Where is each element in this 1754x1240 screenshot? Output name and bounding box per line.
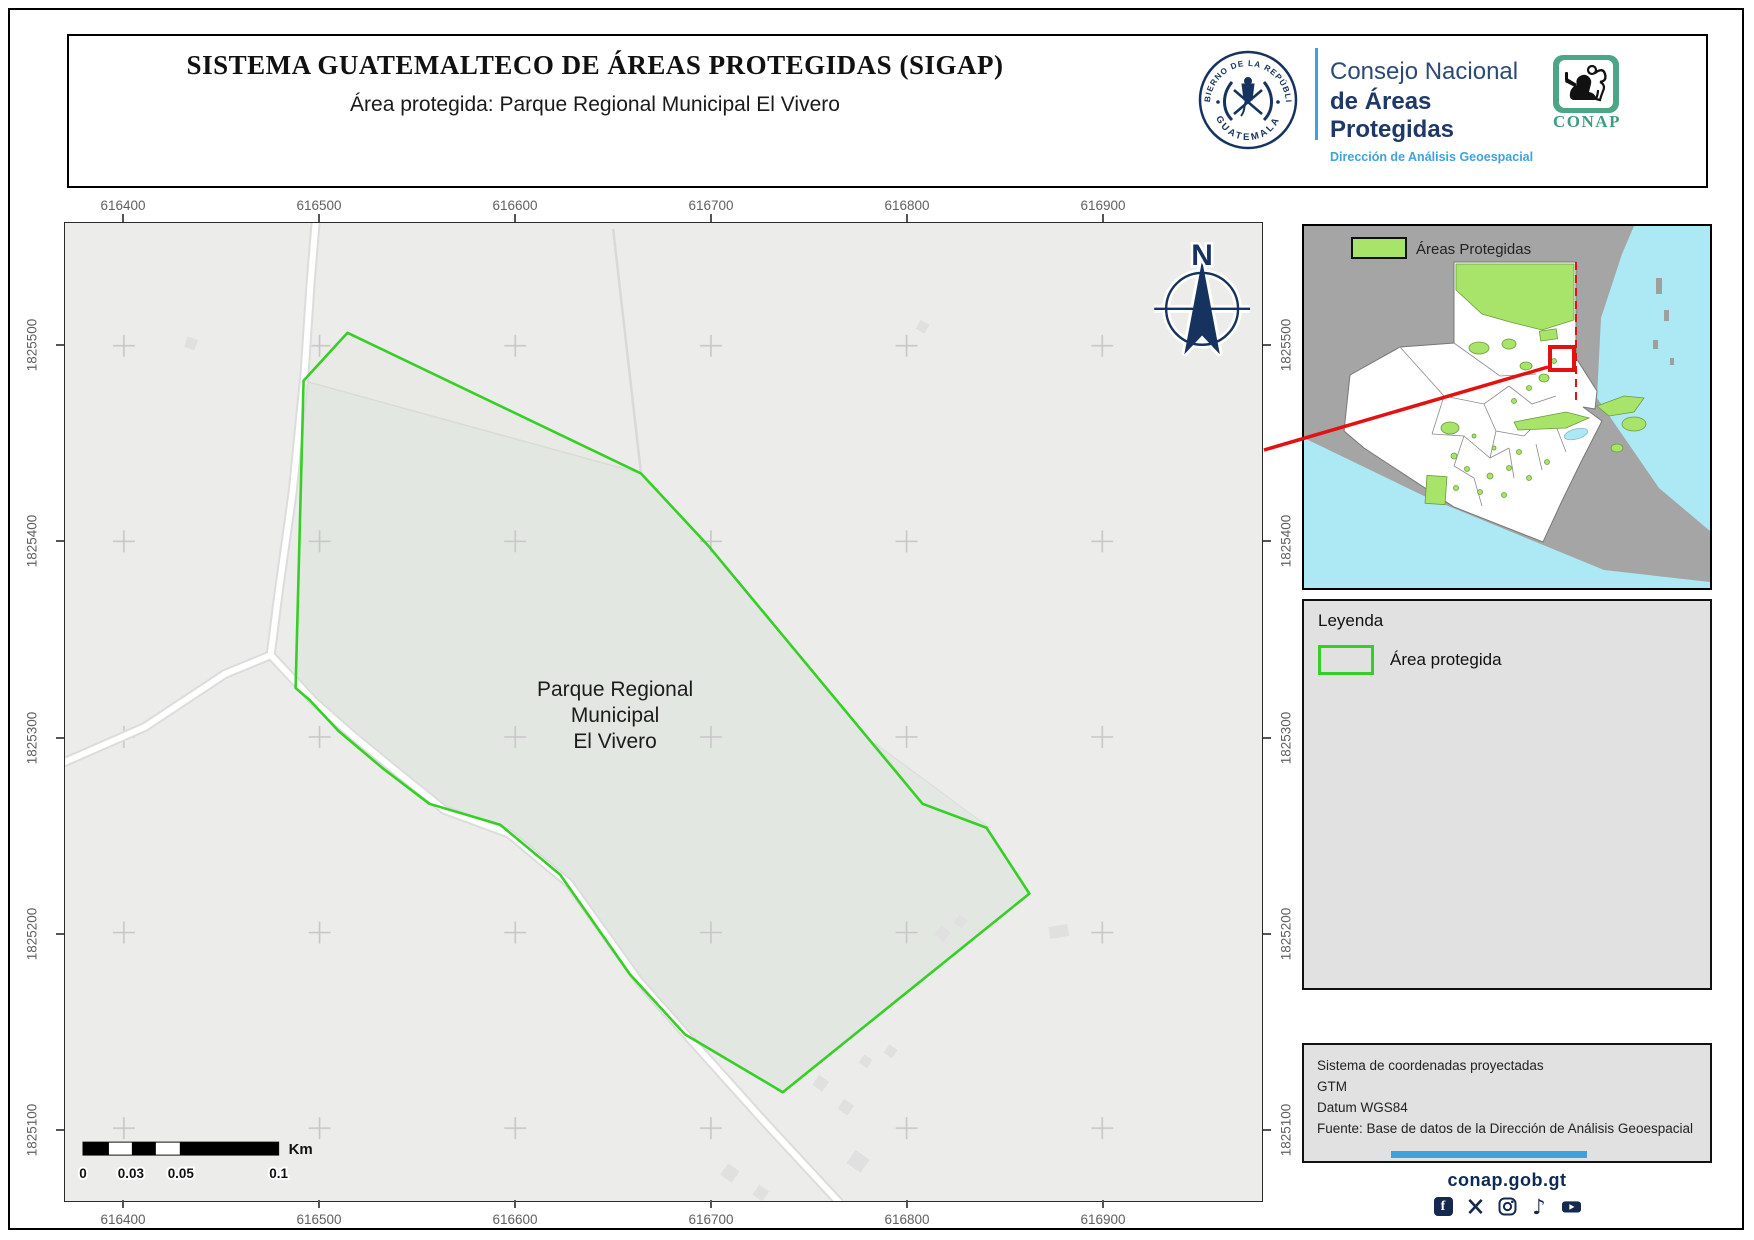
x-axis-label-top: 616600 (492, 198, 537, 213)
y-axis-label-right: 1825300 (1279, 712, 1294, 765)
website-url: conap.gob.gt (1302, 1170, 1712, 1191)
x-tickmark (318, 1200, 320, 1208)
x-axis-label-bottom: 616700 (688, 1212, 733, 1227)
facebook-icon: f (1434, 1197, 1453, 1216)
x-tickmark (1102, 214, 1104, 222)
y-axis-label-right: 1825500 (1279, 319, 1294, 372)
government-seal-logo: GOBIERNO DE LA REPÚBLICA GUATEMALA (1198, 50, 1298, 150)
scale-tick-01: 0.1 (269, 1166, 288, 1181)
area-label-line1: Parque Regional (537, 678, 693, 701)
scale-tick-0: 0 (79, 1166, 87, 1181)
council-line3: Dirección de Análisis Geoespacial (1330, 150, 1555, 164)
x-axis-label-bottom: 616600 (492, 1212, 537, 1227)
x-tickmark (906, 1200, 908, 1208)
x-axis-label-top: 616700 (688, 198, 733, 213)
scale-unit: Km (289, 1141, 313, 1158)
legend-item: Área protegida (1318, 645, 1696, 675)
y-axis-label-left: 1825300 (25, 712, 40, 765)
y-tickmark (56, 1129, 64, 1131)
y-axis-label-right: 1825400 (1279, 515, 1294, 568)
area-label-line2: Municipal (571, 704, 660, 727)
y-axis-label-left: 1825100 (25, 1104, 40, 1157)
scale-tick-005: 0.05 (168, 1166, 195, 1181)
x-tickmark (514, 1200, 516, 1208)
y-tickmark (1263, 933, 1271, 935)
y-tickmark (56, 344, 64, 346)
north-label: N (1191, 239, 1213, 272)
x-axis-label-bottom: 616500 (296, 1212, 341, 1227)
inset-overview-map: Áreas Protegidas (1302, 224, 1712, 590)
conap-monkey-icon (1559, 60, 1613, 108)
y-tickmark (1263, 344, 1271, 346)
map-sheet: SISTEMA GUATEMALTECO DE ÁREAS PROTEGIDAS… (0, 0, 1754, 1240)
council-wordmark: Consejo Nacional de Áreas Protegidas Dir… (1330, 58, 1555, 164)
x-tickmark (710, 214, 712, 222)
page-title: SISTEMA GUATEMALTECO DE ÁREAS PROTEGIDAS… (90, 50, 1100, 81)
legend-title: Leyenda (1318, 611, 1696, 631)
y-axis-label-left: 1825500 (25, 319, 40, 372)
y-tickmark (56, 540, 64, 542)
datum-line: Datum WGS84 (1317, 1098, 1697, 1119)
inset-legend-label: Áreas Protegidas (1416, 241, 1531, 258)
x-tickmark (1102, 1200, 1104, 1208)
council-line2: de Áreas Protegidas (1330, 88, 1555, 144)
crs-line: Sistema de coordenadas proyectadas (1317, 1056, 1697, 1077)
y-axis-label-right: 1825100 (1279, 1104, 1294, 1157)
y-tickmark (1263, 540, 1271, 542)
protected-area-swatch (1318, 645, 1374, 675)
x-icon (1466, 1197, 1485, 1216)
grid-crosses (65, 223, 1262, 1201)
header-divider (1315, 48, 1318, 140)
youtube-icon (1562, 1197, 1581, 1216)
x-axis-label-bottom: 616900 (1080, 1212, 1125, 1227)
y-tickmark (56, 933, 64, 935)
y-axis-label-left: 1825400 (25, 515, 40, 568)
y-tickmark (1263, 1129, 1271, 1131)
instagram-icon (1498, 1197, 1517, 1216)
council-line1: Consejo Nacional (1330, 58, 1555, 86)
x-axis-label-top: 616400 (100, 198, 145, 213)
area-label-line3: El Vivero (573, 730, 656, 753)
x-tickmark (906, 214, 908, 222)
footer-accent-bar (1391, 1151, 1587, 1158)
page-subtitle: Área protegida: Parque Regional Municipa… (90, 93, 1100, 117)
title-block: SISTEMA GUATEMALTECO DE ÁREAS PROTEGIDAS… (90, 50, 1100, 117)
x-axis-label-top: 616800 (884, 198, 929, 213)
social-icons-row: f ♪ (1302, 1197, 1712, 1216)
x-tickmark (122, 1200, 124, 1208)
y-tickmark (1263, 737, 1271, 739)
x-tickmark (122, 214, 124, 222)
y-axis-label-left: 1825200 (25, 908, 40, 961)
x-axis-label-bottom: 616400 (100, 1212, 145, 1227)
x-tickmark (514, 214, 516, 222)
scale-tick-003: 0.03 (118, 1166, 144, 1181)
tiktok-icon: ♪ (1530, 1197, 1549, 1216)
conap-logo-inner (1559, 60, 1613, 108)
conap-wordmark: CONAP (1545, 112, 1629, 132)
metadata-panel: Sistema de coordenadas proyectadas GTM D… (1302, 1043, 1712, 1163)
projection-line: GTM (1317, 1077, 1697, 1098)
source-line: Fuente: Base de datos de la Dirección de… (1317, 1119, 1697, 1140)
x-axis-label-bottom: 616800 (884, 1212, 929, 1227)
y-tickmark (56, 737, 64, 739)
x-axis-label-top: 616500 (296, 198, 341, 213)
y-axis-label-right: 1825200 (1279, 908, 1294, 961)
inset-legend-swatch (1352, 238, 1406, 258)
legend-item-label: Área protegida (1390, 650, 1502, 670)
main-map: Parque Regional Municipal El Vivero N (64, 222, 1263, 1202)
x-tickmark (710, 1200, 712, 1208)
x-axis-label-top: 616900 (1080, 198, 1125, 213)
legend-panel: Leyenda Área protegida (1302, 599, 1712, 990)
x-tickmark (318, 214, 320, 222)
